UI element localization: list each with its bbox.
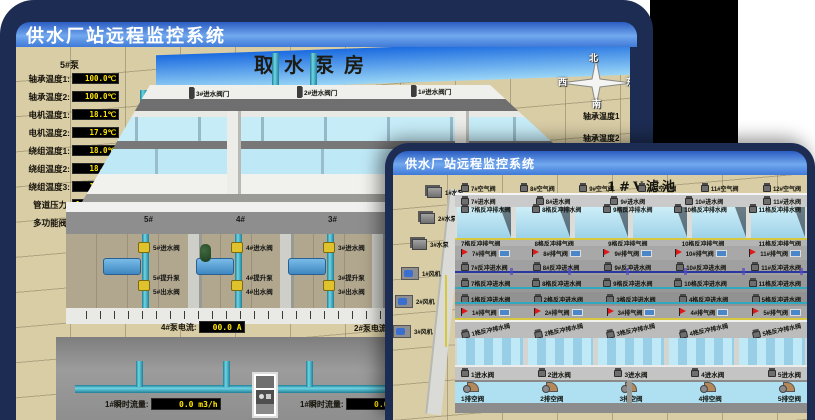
label: 11#排气阀 bbox=[760, 249, 788, 258]
label: 9#空气阀 bbox=[589, 184, 614, 193]
lift-pump-icon[interactable] bbox=[103, 258, 141, 275]
basin-wall bbox=[75, 99, 630, 111]
label: 2排空阀 bbox=[540, 393, 563, 403]
intake-valve[interactable]: 3#进水阀门 bbox=[189, 87, 229, 99]
valve-icon[interactable] bbox=[749, 280, 757, 287]
pump-label: 5#提升泵 bbox=[153, 272, 180, 282]
filter-pool-block: 7#空气阀8#空气阀9#空气阀10#空气阀11#空气阀12#空气阀 7#进水阀8… bbox=[455, 183, 807, 413]
front-inlet-row: 1进水阀2进水阀3进水阀4进水阀5进水阀 bbox=[455, 365, 807, 380]
valve-icon[interactable] bbox=[610, 198, 618, 205]
air-pipe bbox=[445, 275, 447, 347]
pool-base bbox=[455, 403, 807, 413]
lcd-value: 100.0℃ bbox=[72, 73, 119, 84]
elbow-pipe-icon[interactable] bbox=[783, 382, 795, 392]
valve-icon[interactable] bbox=[614, 370, 622, 377]
lcd-value: 17.9℃ bbox=[72, 127, 119, 138]
valve-icon[interactable] bbox=[461, 280, 469, 287]
vent-valve-row-upper: 7#排气阀8#排气阀9#排气阀10#排气阀11#排气阀 bbox=[455, 246, 807, 260]
inlet-valve[interactable]: 4进水阀 bbox=[691, 367, 724, 380]
fan-icon[interactable] bbox=[395, 295, 413, 308]
label: 5排空阀 bbox=[778, 393, 801, 403]
vent-valve[interactable]: 1#排气阀 bbox=[461, 306, 510, 318]
label: 10#空气阀 bbox=[648, 184, 676, 193]
valve-actuator-icon[interactable] bbox=[297, 86, 302, 98]
pool-cell bbox=[598, 338, 664, 365]
vent-flag-icon[interactable] bbox=[534, 308, 543, 316]
backwash-inlet-row-mid: 7格反冲进水阀8格反冲进水阀9格反冲进水阀10格反冲进水阀11格反冲进水阀 bbox=[455, 275, 807, 292]
pump-icon[interactable] bbox=[412, 239, 427, 250]
valve-icon[interactable] bbox=[674, 206, 682, 213]
empty-valve[interactable]: 5排空阀 bbox=[778, 382, 801, 403]
readout-label: 绕组温度2: bbox=[26, 163, 70, 175]
pump5-header: 5#泵 bbox=[60, 58, 79, 71]
readout-label: 轴承温度1: bbox=[26, 73, 70, 85]
label: 10格反冲排水阀 bbox=[684, 205, 727, 214]
readout-label: 电机温度2: bbox=[26, 127, 70, 139]
readout-label: 4#泵电流: bbox=[161, 322, 197, 333]
basin-walkway bbox=[75, 85, 630, 99]
flow-readout-1: 1#瞬时流量: 0.0 m3/h bbox=[105, 398, 221, 410]
blower-fan[interactable]: 1#风机 bbox=[401, 267, 441, 280]
tray-icon bbox=[499, 250, 510, 257]
label: 7#空气阀 bbox=[471, 184, 496, 193]
backwash-drain-valve[interactable]: 7格反冲排水阀 bbox=[461, 205, 510, 213]
tray-icon bbox=[570, 250, 581, 257]
lcd-value: 18.1℃ bbox=[72, 109, 119, 120]
cabinet-base bbox=[256, 404, 274, 414]
tray-icon bbox=[644, 309, 655, 316]
valve-icon[interactable] bbox=[768, 370, 776, 377]
pool-cell bbox=[669, 338, 735, 365]
label: 3#进水阀门 bbox=[196, 88, 229, 98]
flow-meter-cabinet[interactable] bbox=[252, 372, 278, 418]
pool-cell bbox=[739, 338, 805, 365]
readout-row: 绕组温度1:18.0℃ bbox=[26, 145, 119, 156]
vent-flag-icon[interactable] bbox=[675, 249, 684, 257]
vent-valve[interactable]: 10#排气阀 bbox=[675, 246, 727, 260]
pump-bay: 5#进水阀5#提升泵5#出水阀 bbox=[101, 234, 191, 308]
cabinet-pump-glyph bbox=[256, 390, 274, 404]
pipe bbox=[272, 53, 279, 87]
label: 3进水阀 bbox=[624, 369, 647, 379]
valve-icon[interactable] bbox=[603, 280, 611, 287]
backwash-air-row: 7格反冲排气阀8格反冲排气阀9格反冲排气阀10格反冲排气阀11格反冲排气阀 bbox=[455, 238, 807, 246]
label: 10#排气阀 bbox=[686, 249, 714, 258]
pump4-current-readout: 4#泵电流: 00.0 A bbox=[161, 321, 245, 333]
label: 4格反冲排水阀 bbox=[688, 320, 728, 337]
pipe bbox=[310, 53, 317, 87]
vent-valve[interactable]: 2#排气阀 bbox=[534, 306, 583, 318]
valve-actuator-icon[interactable] bbox=[189, 87, 194, 99]
empty-valve[interactable]: 4排空阀 bbox=[699, 382, 722, 403]
vent-flag-icon[interactable] bbox=[749, 249, 758, 257]
vent-valve[interactable]: 9#排气阀 bbox=[603, 246, 652, 260]
tray-icon bbox=[572, 309, 583, 316]
label: 轴承温度1 bbox=[583, 111, 619, 122]
pump-bay: 3#进水阀3#提升泵3#出水阀 bbox=[286, 234, 376, 308]
pump-icon[interactable] bbox=[427, 187, 442, 198]
compass: 北 西 南 东 bbox=[556, 53, 630, 111]
label: 4进水阀 bbox=[701, 369, 724, 379]
label: 9#排气阀 bbox=[614, 249, 639, 258]
tray-icon bbox=[717, 309, 728, 316]
air-valve[interactable]: 8#空气阀 bbox=[520, 183, 555, 193]
valve-icon[interactable] bbox=[538, 370, 546, 377]
air-valve[interactable]: 12#空气阀 bbox=[763, 183, 801, 193]
window-title: 供水厂站远程监控系统 bbox=[26, 22, 226, 48]
compass-south: 南 bbox=[592, 97, 601, 110]
backwash-drain-row: 7格反冲排水阀8格反冲排水阀9格反冲排水阀10格反冲排水阀11格反冲排水阀 bbox=[455, 205, 807, 213]
label: 11格反冲排水阀 bbox=[759, 205, 801, 214]
intake-valve[interactable]: 1#进水阀门 bbox=[411, 85, 451, 97]
tray-icon bbox=[641, 250, 652, 257]
tray-icon bbox=[499, 309, 510, 316]
lcd-value: 100.0℃ bbox=[72, 91, 119, 102]
label: 3# bbox=[328, 215, 337, 224]
inlet-valve-icon[interactable] bbox=[138, 242, 150, 253]
label: 8格反冲排水阀 bbox=[542, 205, 581, 214]
bay-number: 5# bbox=[144, 215, 153, 224]
compass-east: 东 bbox=[626, 75, 630, 88]
air-valve[interactable]: 7#空气阀 bbox=[461, 183, 496, 193]
tank-icon bbox=[200, 244, 211, 262]
label: 1格反冲排水阀 bbox=[470, 320, 510, 337]
readout-label: 电机温度1: bbox=[26, 109, 70, 121]
vent-valve[interactable]: 7#排气阀 bbox=[461, 246, 510, 260]
valve-label: 3#进水阀 bbox=[338, 242, 365, 252]
tray-icon bbox=[790, 250, 801, 257]
inlet-valve[interactable]: 2进水阀 bbox=[538, 367, 571, 380]
label: 3#排气阀 bbox=[618, 308, 643, 317]
vent-valve[interactable]: 8#排气阀 bbox=[532, 246, 581, 260]
label: 7格反冲排水阀 bbox=[471, 205, 510, 214]
label: 2#风机 bbox=[416, 297, 435, 306]
label: 1#排气阀 bbox=[472, 308, 497, 317]
lift-pump-icon[interactable] bbox=[288, 258, 326, 275]
panel-label: 轴承温度1 bbox=[583, 111, 619, 122]
valve-icon[interactable] bbox=[461, 370, 469, 377]
pool-cell bbox=[457, 338, 523, 365]
readout-row: 电机温度2:17.9℃ bbox=[26, 127, 119, 138]
valve-label: 5#出水阀 bbox=[153, 286, 180, 296]
label: 3格反冲排水阀 bbox=[616, 320, 656, 337]
label: 8#空气阀 bbox=[530, 184, 555, 193]
pump-label: 3#提升泵 bbox=[338, 272, 365, 282]
blower-fan[interactable]: 2#风机 bbox=[395, 295, 435, 308]
inlet-valve[interactable]: 3进水阀 bbox=[614, 367, 647, 380]
basin-water-channel bbox=[75, 117, 630, 141]
valve-icon[interactable] bbox=[532, 206, 540, 213]
inlet-valve[interactable]: 1进水阀 bbox=[461, 367, 494, 380]
valve-label: 3#出水阀 bbox=[338, 286, 365, 296]
vent-flag-icon[interactable] bbox=[752, 308, 761, 316]
bay-number: 4# bbox=[236, 215, 245, 224]
pipe-stub bbox=[136, 361, 143, 387]
label: 2进水阀 bbox=[548, 369, 571, 379]
tray-icon bbox=[716, 250, 727, 257]
lcd-value: 0.0 m3/h bbox=[151, 398, 221, 410]
window-title: 供水厂站远程监控系统 bbox=[405, 155, 535, 172]
label: 5格反冲排水阀 bbox=[761, 320, 801, 337]
lcd-value: 00.0 A bbox=[199, 321, 245, 333]
label: 5进水阀 bbox=[778, 369, 801, 379]
valve-icon[interactable] bbox=[461, 185, 469, 192]
backwash-drain-valve[interactable]: 8格反冲排水阀 bbox=[532, 205, 581, 213]
pump-icon[interactable] bbox=[420, 213, 435, 224]
valve-icon[interactable] bbox=[685, 198, 693, 205]
readout-label: 绕组温度3: bbox=[26, 181, 70, 193]
vent-flag-icon[interactable] bbox=[532, 249, 541, 257]
title-bar[interactable]: 供水厂站远程监控系统 bbox=[393, 151, 807, 175]
desktop: 供水厂站远程监控系统 取水泵房 5#泵 轴承温度1:100.0℃轴承温度2:10… bbox=[0, 0, 815, 420]
elbow-pipe-icon[interactable] bbox=[546, 382, 558, 392]
valve-label: 5#进水阀 bbox=[153, 242, 180, 252]
vent-valve[interactable]: 11#排气阀 bbox=[749, 246, 801, 260]
valve-icon[interactable] bbox=[532, 280, 540, 287]
backwash-drain-valve[interactable]: 9格反冲排水阀 bbox=[603, 205, 652, 213]
pipe-cyan bbox=[455, 287, 807, 289]
vent-valve[interactable]: 4#排气阀 bbox=[679, 306, 728, 318]
label: 1排空阀 bbox=[461, 393, 484, 403]
label: 2#水泵 bbox=[438, 214, 457, 223]
label: 2#进水阀门 bbox=[304, 87, 337, 97]
fan-icon[interactable] bbox=[401, 267, 419, 280]
readout-row: 电机温度1:18.1℃ bbox=[26, 109, 119, 120]
tray-icon bbox=[790, 309, 801, 316]
intake-valve[interactable]: 2#进水阀门 bbox=[297, 86, 337, 98]
readout-label: 1#瞬时流量: bbox=[105, 399, 149, 410]
pipe-stub bbox=[306, 361, 313, 387]
channel-divider bbox=[627, 380, 632, 403]
vent-flag-icon[interactable] bbox=[603, 249, 612, 257]
readout-label: 轴承温度2: bbox=[26, 91, 70, 103]
front-pools bbox=[455, 338, 807, 365]
compass-west: 西 bbox=[558, 75, 567, 88]
front-drain-row: 1格反冲排水阀2格反冲排水阀3格反冲排水阀4格反冲排水阀5格反冲排水阀 bbox=[455, 320, 807, 338]
label: 1#进水阀门 bbox=[418, 86, 451, 96]
valve-icon[interactable] bbox=[536, 198, 544, 205]
backwash-inlet-valve[interactable]: 7格反冲进水阀 bbox=[461, 275, 510, 292]
label: 3#水泵 bbox=[430, 240, 449, 249]
readout-label: 1#瞬时流量: bbox=[300, 399, 344, 410]
pipe-cyan bbox=[455, 302, 807, 304]
window-filter-pool: 供水厂站远程监控系统 1#V滤池 1#水泵2#水泵3#水泵 1#风机2#风机3#… bbox=[385, 143, 815, 420]
inlet-valve-icon[interactable] bbox=[323, 242, 335, 253]
readout-label: 多功能阀: bbox=[26, 217, 70, 229]
inlet-valve-icon[interactable] bbox=[231, 242, 243, 253]
outlet-valve-icon[interactable] bbox=[323, 280, 335, 291]
valve-icon[interactable] bbox=[461, 206, 469, 213]
empty-valve[interactable]: 2排空阀 bbox=[540, 382, 563, 403]
label: 7#排气阀 bbox=[472, 249, 497, 258]
vent-flag-icon[interactable] bbox=[607, 308, 616, 316]
vent-flag-icon[interactable] bbox=[461, 249, 470, 257]
vent-flag-icon[interactable] bbox=[461, 308, 470, 316]
outlet-valve-icon[interactable] bbox=[138, 280, 150, 291]
label: 8#排气阀 bbox=[543, 249, 568, 258]
valve-icon[interactable] bbox=[674, 280, 682, 287]
valve-icon[interactable] bbox=[461, 198, 469, 205]
desktop-black-area bbox=[650, 0, 738, 145]
valve-icon[interactable] bbox=[579, 185, 587, 192]
basin-pier bbox=[227, 111, 241, 194]
outlet-valve-icon[interactable] bbox=[231, 280, 243, 291]
label: 4#排气阀 bbox=[690, 308, 715, 317]
valve-icon[interactable] bbox=[603, 206, 611, 213]
elbow-pipe-icon[interactable] bbox=[467, 382, 479, 392]
label: 4排空阀 bbox=[699, 393, 722, 403]
backwash-inlet-valve[interactable]: 9格反冲进水阀 bbox=[603, 275, 652, 292]
valve-label: 4#进水阀 bbox=[246, 242, 273, 252]
valve-icon[interactable] bbox=[701, 185, 709, 192]
valve-icon[interactable] bbox=[638, 185, 646, 192]
readout-row: 轴承温度2:100.0℃ bbox=[26, 91, 119, 102]
bay-number: 3# bbox=[328, 215, 337, 224]
valve-label: 4#出水阀 bbox=[246, 286, 273, 296]
pipe-stub bbox=[223, 361, 230, 387]
pool-cell bbox=[528, 338, 594, 365]
vent-valve[interactable]: 3#排气阀 bbox=[607, 306, 656, 318]
label: 3#风机 bbox=[414, 327, 433, 336]
backwash-drain-valve[interactable]: 11格反冲排水阀 bbox=[749, 205, 801, 213]
valve-icon[interactable] bbox=[749, 206, 757, 213]
label: 5# bbox=[144, 215, 153, 224]
valve-icon[interactable] bbox=[691, 370, 699, 377]
fan-icon[interactable] bbox=[393, 325, 411, 338]
label: 12#空气阀 bbox=[773, 184, 801, 193]
label: 11#空气阀 bbox=[711, 184, 739, 193]
label: 5#排气阀 bbox=[763, 308, 788, 317]
cabinet-panel bbox=[256, 376, 274, 388]
elbow-pipe-icon[interactable] bbox=[704, 382, 716, 392]
backwash-inlet-valve[interactable]: 8格反冲进水阀 bbox=[532, 275, 581, 292]
backwash-inlet-valve[interactable]: 11格反冲进水阀 bbox=[749, 275, 801, 292]
vent-flag-icon[interactable] bbox=[679, 308, 688, 316]
label: 2格反冲排水阀 bbox=[543, 320, 583, 337]
label: 2#排气阀 bbox=[545, 308, 570, 317]
water-pump[interactable]: 2#水泵 bbox=[420, 213, 457, 224]
backwash-drain-valve[interactable]: 10格反冲排水阀 bbox=[674, 205, 727, 213]
readout-label: 管道压力: bbox=[26, 199, 70, 211]
backwash-inlet-valve[interactable]: 10格反冲进水阀 bbox=[674, 275, 727, 292]
air-valve-row: 7#空气阀8#空气阀9#空气阀10#空气阀11#空气阀12#空气阀 bbox=[455, 183, 807, 193]
label: 1进水阀 bbox=[471, 369, 494, 379]
compass-north: 北 bbox=[589, 51, 598, 64]
valve-icon[interactable] bbox=[763, 185, 771, 192]
inlet-valve[interactable]: 5进水阀 bbox=[768, 367, 801, 380]
readout-label: 绕组温度1: bbox=[26, 145, 70, 157]
scene-filter-pool: 1#V滤池 1#水泵2#水泵3#水泵 1#风机2#风机3#风机 7#空气阀8#空… bbox=[393, 175, 807, 420]
air-valve[interactable]: 11#空气阀 bbox=[701, 183, 739, 193]
valve-icon[interactable] bbox=[763, 198, 771, 205]
pump-label: 4#提升泵 bbox=[246, 272, 273, 282]
blower-fan[interactable]: 3#风机 bbox=[393, 325, 433, 338]
empty-valve[interactable]: 1排空阀 bbox=[461, 382, 484, 403]
air-valve[interactable]: 9#空气阀 bbox=[579, 183, 614, 193]
label: 1#风机 bbox=[422, 269, 441, 278]
readout-row: 轴承温度1:100.0℃ bbox=[26, 73, 119, 84]
label: 9格反冲排水阀 bbox=[613, 205, 652, 214]
title-bar[interactable]: 供水厂站远程监控系统 bbox=[16, 22, 637, 47]
valve-actuator-icon[interactable] bbox=[411, 85, 416, 97]
label: 4# bbox=[236, 215, 245, 224]
air-valve[interactable]: 10#空气阀 bbox=[638, 183, 676, 193]
vent-valve[interactable]: 5#排气阀 bbox=[752, 306, 801, 318]
valve-icon[interactable] bbox=[520, 185, 528, 192]
water-pump[interactable]: 3#水泵 bbox=[412, 239, 449, 250]
